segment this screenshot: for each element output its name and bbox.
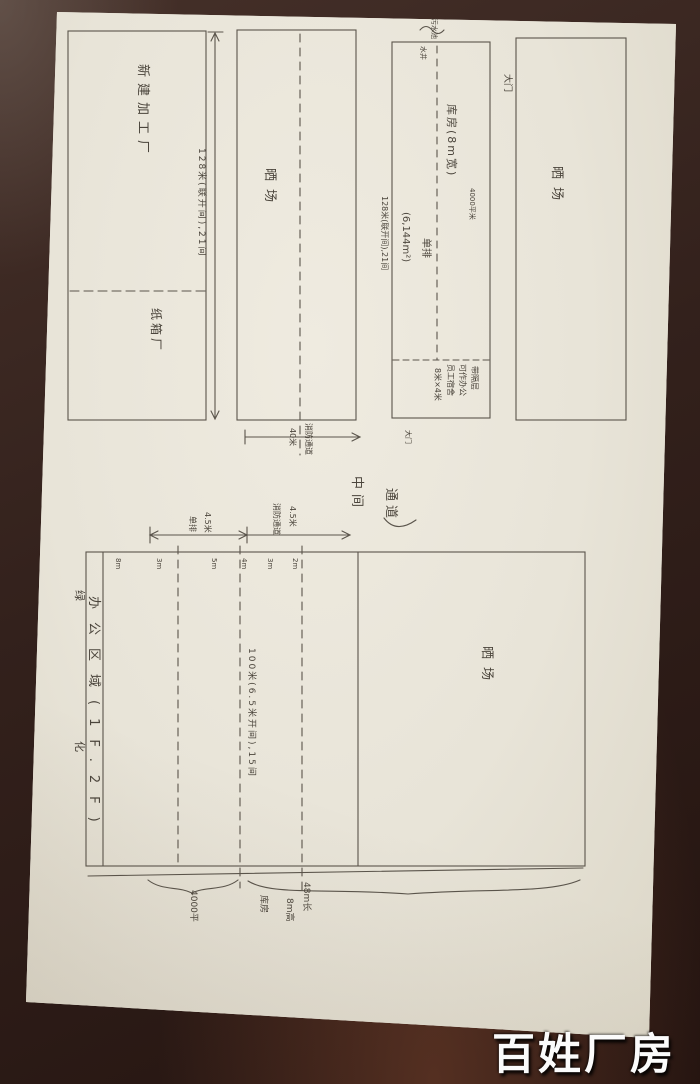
warehouse-c-corner-note: 大门 [404, 430, 411, 444]
photo-of-sketch: 新建加工厂 纸箱厂 128米(联开间),21间 晒场 40米 消防通道 库房(8… [0, 0, 700, 1084]
building-a-label: 新建加工厂 [136, 64, 149, 159]
brace-right [248, 880, 580, 894]
watermark: 百姓厂房网 [492, 1020, 700, 1084]
tick-label-3: 4m [240, 558, 247, 569]
gate-note: 大门 [502, 74, 511, 92]
passage-word-2: 通道 [384, 488, 397, 522]
bottom-note-a1: 4.5米 [203, 512, 211, 533]
warehouse-c-note-3: 员工宿舍 [446, 364, 454, 396]
dim-left-label: 128米(联开间),21间 [196, 148, 205, 258]
yard-b-width-note: 40米 [288, 428, 296, 446]
tick-label-1: 3m [155, 558, 162, 569]
greenery-label: 绿化 [74, 590, 85, 892]
building-a-tenant-label: 纸箱厂 [150, 308, 162, 353]
bottom-yard-label: 晒场 [480, 646, 493, 688]
warehouse-c-top-note-a: 污水池 [430, 18, 437, 39]
yard-b-outline [237, 30, 356, 420]
brace-area-label: 4000平 [188, 890, 197, 922]
warehouse-c-side-note: 4000平米 [468, 188, 475, 220]
warehouse-c-area-label: (6,144m²) [400, 212, 410, 262]
office-strip-label: 办公区域(1F.2F) [87, 596, 100, 835]
warehouse-c-note-4: 8米×4米 [433, 368, 441, 401]
tick-label-0: 8m [114, 558, 121, 569]
bottom-note-a2: 单排 [188, 516, 196, 532]
brace-height-label-1: 库房 [258, 895, 267, 913]
bottom-plan-outline [86, 552, 585, 866]
yard-d-outline [516, 38, 626, 420]
warehouse-c-note-1: 带隔层 [470, 366, 478, 390]
bottom-note-b2: 消防通道 [272, 503, 280, 535]
warehouse-c-top-note-b: 水井 [419, 46, 426, 60]
bottom-baseline [88, 868, 583, 876]
warehouse-c-row-note: 单排 [420, 238, 430, 258]
tick-label-2: 5m [210, 558, 217, 569]
sketch-strokes [0, 0, 700, 1084]
tick-label-5: 2m [291, 558, 298, 569]
yard-b-label: 晒场 [263, 168, 276, 210]
bottom-note-b1: 4.5米 [288, 506, 296, 527]
brace-height-label-2: 8m高 [284, 898, 293, 922]
yard-b-lane-note: 消防通道 [304, 423, 312, 455]
warehouse-c-note-2: 可作办公 [458, 364, 466, 396]
bay-dim-label: 100米(6.5米开间),15间 [246, 648, 255, 778]
warehouse-c-label: 库房(8m宽) [446, 104, 457, 177]
warehouse-c-dim-label: 128米(联开间),21间 [380, 196, 388, 270]
tick-label-4: 3m [266, 558, 273, 569]
passage-word-1: 中间 [350, 476, 363, 512]
brace-length-label: 48m长 [301, 882, 310, 911]
yard-d-label: 晒场 [550, 166, 563, 208]
